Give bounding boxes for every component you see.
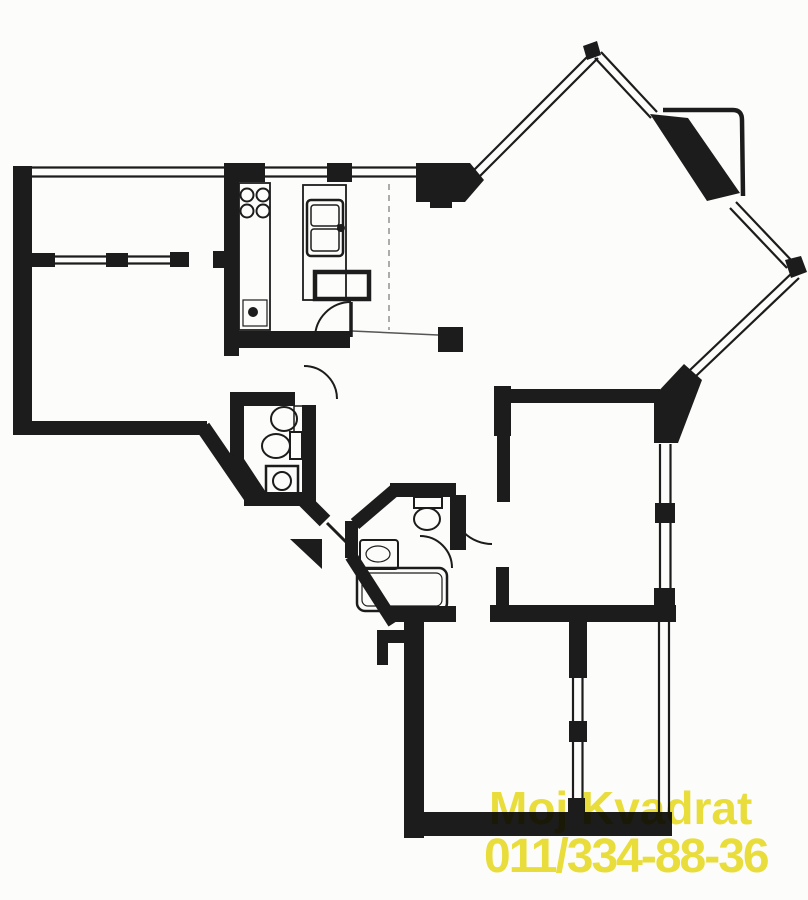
washing-machine-icon [266, 466, 298, 496]
column [438, 327, 463, 352]
exterior-walls [13, 41, 807, 521]
kitchen-sink-icon [307, 200, 345, 256]
stove-icon [241, 189, 270, 218]
entrance-arrow [290, 539, 322, 569]
interior-walls [13, 166, 676, 838]
floor-plan-svg [0, 0, 808, 900]
bathroom-toilet-icon [414, 497, 442, 530]
wc-fixtures [262, 406, 304, 496]
floor-plan-page: Moj Kvadrat 011/334-88-36 [0, 0, 808, 900]
drain-dot [248, 307, 258, 317]
bathroom-sink-icon [360, 540, 398, 569]
wc-toilet-icon [262, 432, 302, 459]
wc-sink-icon [271, 406, 304, 432]
kitchen-table-icon [315, 272, 369, 299]
